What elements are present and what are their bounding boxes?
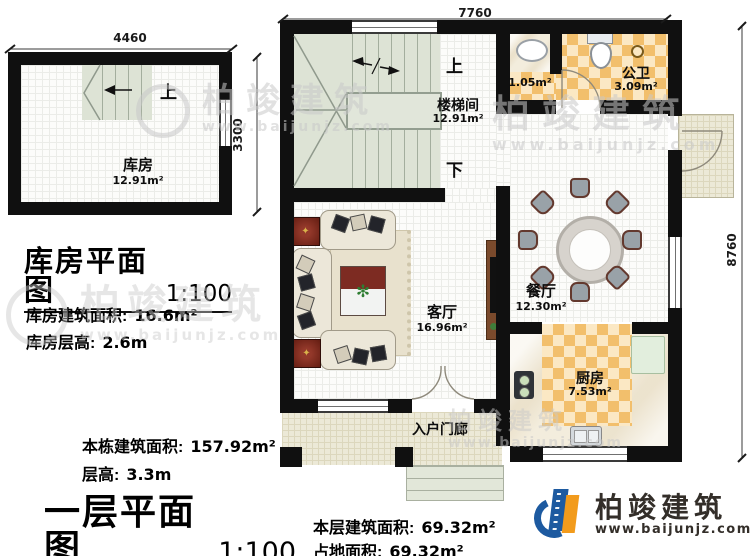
wall-segment <box>388 399 412 413</box>
dining-passage-floor <box>496 112 510 186</box>
room-name: 入户门廊 <box>398 422 482 437</box>
room-name: 客厅 <box>406 305 478 322</box>
stat-label: 本栋建筑面积: <box>82 433 183 457</box>
wall-segment <box>280 399 318 413</box>
pillow <box>297 311 316 330</box>
wall-segment <box>550 34 562 74</box>
room-area: 16.96m² <box>406 322 478 335</box>
pillow <box>333 345 352 364</box>
sink-icon <box>516 39 548 62</box>
room-name: 库房 <box>98 158 178 175</box>
room-label-bathroom: 公卫 3.09m² <box>600 66 672 94</box>
dimension-right-storage: 3300 <box>231 113 245 157</box>
wall-segment <box>474 399 510 413</box>
fridge-icon <box>631 336 665 374</box>
stat-label: 库房层高: <box>26 329 95 353</box>
room-name: 厨房 <box>554 371 626 386</box>
burner-icon <box>519 387 530 398</box>
room-label-storage: 库房 12.91m² <box>98 158 178 187</box>
room-name: 公卫 <box>600 66 672 81</box>
wall-segment <box>668 150 682 237</box>
wall-segment <box>437 20 682 34</box>
building-stat-area: 本栋建筑面积: 157.92m² <box>82 433 276 457</box>
room-label-porch: 入户门廊 <box>398 422 482 437</box>
stat-label: 占地面积: <box>313 538 382 556</box>
storage-stair-treads <box>102 65 152 120</box>
burner-icon <box>519 375 530 386</box>
stat-label: 库房建筑面积: <box>26 302 127 326</box>
main-plan-scale: 1:100 <box>218 539 296 556</box>
room-label-dining: 餐厅 12.30m² <box>512 284 570 313</box>
stat-value: 16.6m² <box>134 306 197 325</box>
pillow <box>296 255 316 275</box>
sofa-top <box>320 210 396 250</box>
table-star-icon: ✦ <box>302 349 310 359</box>
wall-segment <box>8 52 232 65</box>
wall-segment <box>280 20 294 413</box>
kitchen-sink-icon <box>570 426 602 446</box>
floor-stat-footprint: 占地面积: 69.32m² <box>313 538 464 556</box>
dimension-top-storage: 4460 <box>100 31 160 45</box>
storage-stat-area: 库房建筑面积: 16.6m² <box>26 302 198 326</box>
storage-up-label: 上 <box>160 78 177 103</box>
room-label-living: 客厅 16.96m² <box>406 305 478 334</box>
pillow <box>296 293 315 312</box>
brand-logo: 柏竣建筑 www.baijunjz.com <box>536 486 750 544</box>
dining-chair <box>622 230 642 250</box>
floorplan-canvas: 上 库房 12.91m² 4460 3300 库房平面图 1:100 库房建筑面… <box>0 0 750 556</box>
storage-plan-title: 库房平面图 <box>24 248 152 306</box>
pillow <box>367 215 385 233</box>
wall-segment <box>496 186 510 334</box>
main-plan-title-block: 一层平面图 1:100 <box>44 494 296 556</box>
coffee-table: ✻ <box>340 266 386 316</box>
porch-column <box>395 447 413 467</box>
side-door-landing <box>678 114 734 198</box>
porch-floor <box>282 412 502 465</box>
window <box>543 446 627 462</box>
window <box>318 399 388 413</box>
stat-value: 157.92m² <box>190 437 275 456</box>
dining-chair <box>570 178 590 198</box>
wall-segment <box>510 446 543 462</box>
table-star-icon: ✦ <box>301 227 309 237</box>
wall-segment <box>496 100 556 114</box>
room-name: 楼梯间 <box>420 98 496 113</box>
sofa-left <box>292 248 332 338</box>
sofa-bottom <box>320 330 396 370</box>
room-label-stairwell: 楼梯间 12.91m² <box>420 98 496 126</box>
wall-segment <box>8 52 21 215</box>
wall-segment <box>280 188 445 202</box>
stat-label: 层高: <box>82 461 119 485</box>
wall-segment <box>496 334 510 446</box>
main-plan-title: 一层平面图 <box>44 494 204 556</box>
stair-down-label: 下 <box>446 156 463 181</box>
floor-drain-icon <box>631 45 644 58</box>
wall-segment <box>632 322 668 334</box>
room-area: 7.53m² <box>554 386 626 399</box>
pillow <box>370 345 387 362</box>
porch-column <box>280 447 302 467</box>
room-name: 餐厅 <box>512 284 570 301</box>
entry-steps <box>406 465 504 501</box>
floor-stat-area: 本层建筑面积: 69.32m² <box>313 514 496 538</box>
stat-value: 3.3m <box>126 465 171 484</box>
pillow <box>352 348 370 366</box>
stair-treads-lower <box>352 130 440 188</box>
building-stat-height: 层高: 3.3m <box>82 461 171 485</box>
stair-treads-upper <box>352 34 440 92</box>
dimension-top-main: 7760 <box>445 6 505 20</box>
stair-up-label: 上 <box>446 52 463 77</box>
stove-icon <box>514 371 534 399</box>
room-area: 1.05m² <box>506 77 554 90</box>
pillow <box>350 214 368 232</box>
dining-chair <box>570 282 590 302</box>
window <box>352 20 437 34</box>
dining-table-top <box>569 229 611 271</box>
dimension-right-main: 8760 <box>725 228 739 272</box>
room-area: 3.09m² <box>600 81 672 94</box>
room-area: 12.91m² <box>420 113 496 126</box>
wall-segment <box>496 322 542 334</box>
wall-segment <box>668 308 682 462</box>
sink-bowl <box>588 430 599 443</box>
room-label-wc-nook: 1.05m² <box>506 77 554 90</box>
room-area: 12.91m² <box>98 175 178 188</box>
stat-value: 69.32m² <box>389 542 463 556</box>
hall-passage-floor <box>445 188 496 202</box>
sink-bowl <box>574 430 587 443</box>
stat-value: 69.32m² <box>421 518 495 537</box>
brand-url: www.baijunjz.com <box>595 522 750 537</box>
room-label-kitchen: 厨房 7.53m² <box>554 371 626 399</box>
pillow <box>297 273 315 291</box>
pillow <box>331 214 350 233</box>
brand-name: 柏竣建筑 <box>595 493 750 522</box>
stat-value: 2.6m <box>102 333 147 352</box>
side-table: ✦ <box>292 339 321 368</box>
wall-segment <box>8 202 232 215</box>
plant-icon: ✻ <box>356 283 370 300</box>
window <box>668 237 682 308</box>
room-area: 12.30m² <box>512 301 570 314</box>
brand-logo-icon <box>536 486 586 544</box>
side-table: ✦ <box>291 217 320 246</box>
dining-chair <box>518 230 538 250</box>
stat-label: 本层建筑面积: <box>313 514 414 538</box>
storage-stat-height: 库房层高: 2.6m <box>26 329 147 353</box>
